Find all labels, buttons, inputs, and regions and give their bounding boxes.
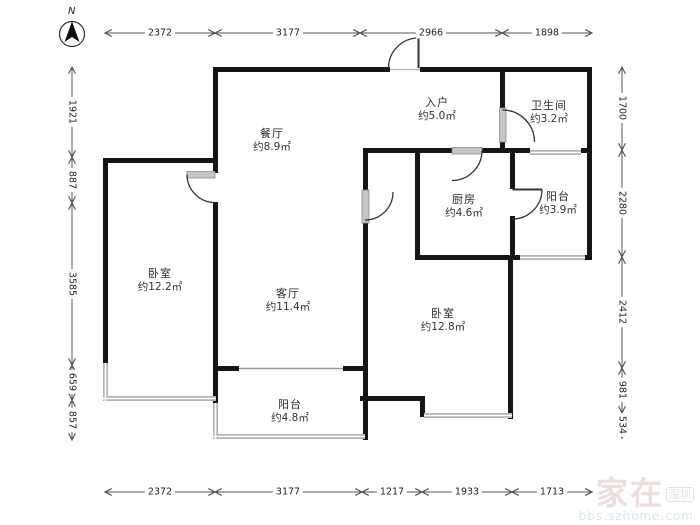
room-label-kitchen: 厨房 约4.6㎡ xyxy=(445,193,483,221)
room-label-entry: 入户 约5.0㎡ xyxy=(418,96,456,124)
room-label-balcony-bottom: 阳台 约4.8㎡ xyxy=(271,398,309,426)
room-name: 卧室 xyxy=(148,267,172,280)
room-name: 阳台 xyxy=(546,190,570,203)
doors xyxy=(187,38,542,223)
north-arrow-icon xyxy=(65,22,80,43)
room-label-balcony-right: 阳台 约3.9㎡ xyxy=(539,190,577,218)
room-area: 约8.9㎡ xyxy=(253,141,291,155)
room-area: 约3.2㎡ xyxy=(530,113,568,127)
bathroom-door-leaf xyxy=(500,108,507,142)
room-name: 卫生间 xyxy=(531,99,567,112)
dim-top-1: 2372 xyxy=(145,28,175,39)
room-area: 约3.9㎡ xyxy=(539,204,577,218)
dim-right-2: 2280 xyxy=(617,188,628,218)
room-name: 卧室 xyxy=(431,307,455,320)
room-area: 约4.6㎡ xyxy=(445,207,483,221)
room-area: 约12.8㎡ xyxy=(421,321,465,335)
dim-bottom-3: 1217 xyxy=(377,487,407,498)
walls xyxy=(103,67,592,440)
room-label-bathroom: 卫生间 约3.2㎡ xyxy=(530,99,568,127)
room-name: 餐厅 xyxy=(260,127,284,140)
room-area: 约11.4㎡ xyxy=(266,301,310,315)
hallway-door-leaf xyxy=(362,190,369,223)
dim-left-3: 3585 xyxy=(67,269,78,299)
room-name: 入户 xyxy=(425,96,449,109)
room-label-bedroom-right: 卧室 约12.8㎡ xyxy=(421,307,465,335)
compass-north-label: N xyxy=(68,6,75,17)
dim-right-5: 534 xyxy=(617,413,628,437)
dim-right-4: 981 xyxy=(617,378,628,402)
room-area: 约5.0㎡ xyxy=(418,110,456,124)
dim-top-2: 3177 xyxy=(273,28,303,39)
dim-left-2: 887 xyxy=(67,168,78,192)
dim-bottom-2: 3177 xyxy=(273,487,303,498)
bedroom-left-door-arc xyxy=(187,175,215,203)
kitchen-door-arc xyxy=(452,151,482,181)
dim-bottom-1: 2372 xyxy=(145,487,175,498)
room-name: 厨房 xyxy=(452,193,476,206)
room-area: 约12.2㎡ xyxy=(138,281,182,295)
north-compass xyxy=(60,22,85,47)
bedroom-left-door-leaf xyxy=(187,172,215,179)
dim-bottom-4: 1933 xyxy=(452,487,482,498)
room-area: 约4.8㎡ xyxy=(271,412,309,426)
dim-right-3: 2412 xyxy=(617,297,628,327)
dim-top-3: 2966 xyxy=(416,28,446,39)
room-label-dining: 餐厅 约8.9㎡ xyxy=(253,127,291,155)
floorplan-drawing xyxy=(0,0,700,525)
room-name: 阳台 xyxy=(278,398,302,411)
room-label-bedroom-left: 卧室 约12.2㎡ xyxy=(138,267,182,295)
dim-left-1: 1921 xyxy=(67,97,78,127)
dim-top-4: 1898 xyxy=(532,28,562,39)
floorplan-canvas: N 餐厅 约8.9㎡ 入户 约5.0㎡ 卫生间 约3.2㎡ 厨房 约4.6㎡ 阳… xyxy=(0,0,700,525)
balcony-right-door-arc xyxy=(513,190,543,220)
dim-left-5: 857 xyxy=(67,408,78,432)
dim-bottom-5: 1713 xyxy=(537,487,567,498)
dim-left-4: 659 xyxy=(67,370,78,394)
kitchen-door-leaf xyxy=(452,148,482,155)
room-name: 客厅 xyxy=(276,287,300,300)
entry-door-arc xyxy=(389,38,419,68)
dim-right-1: 1700 xyxy=(617,93,628,123)
room-label-living: 客厅 约11.4㎡ xyxy=(266,287,310,315)
